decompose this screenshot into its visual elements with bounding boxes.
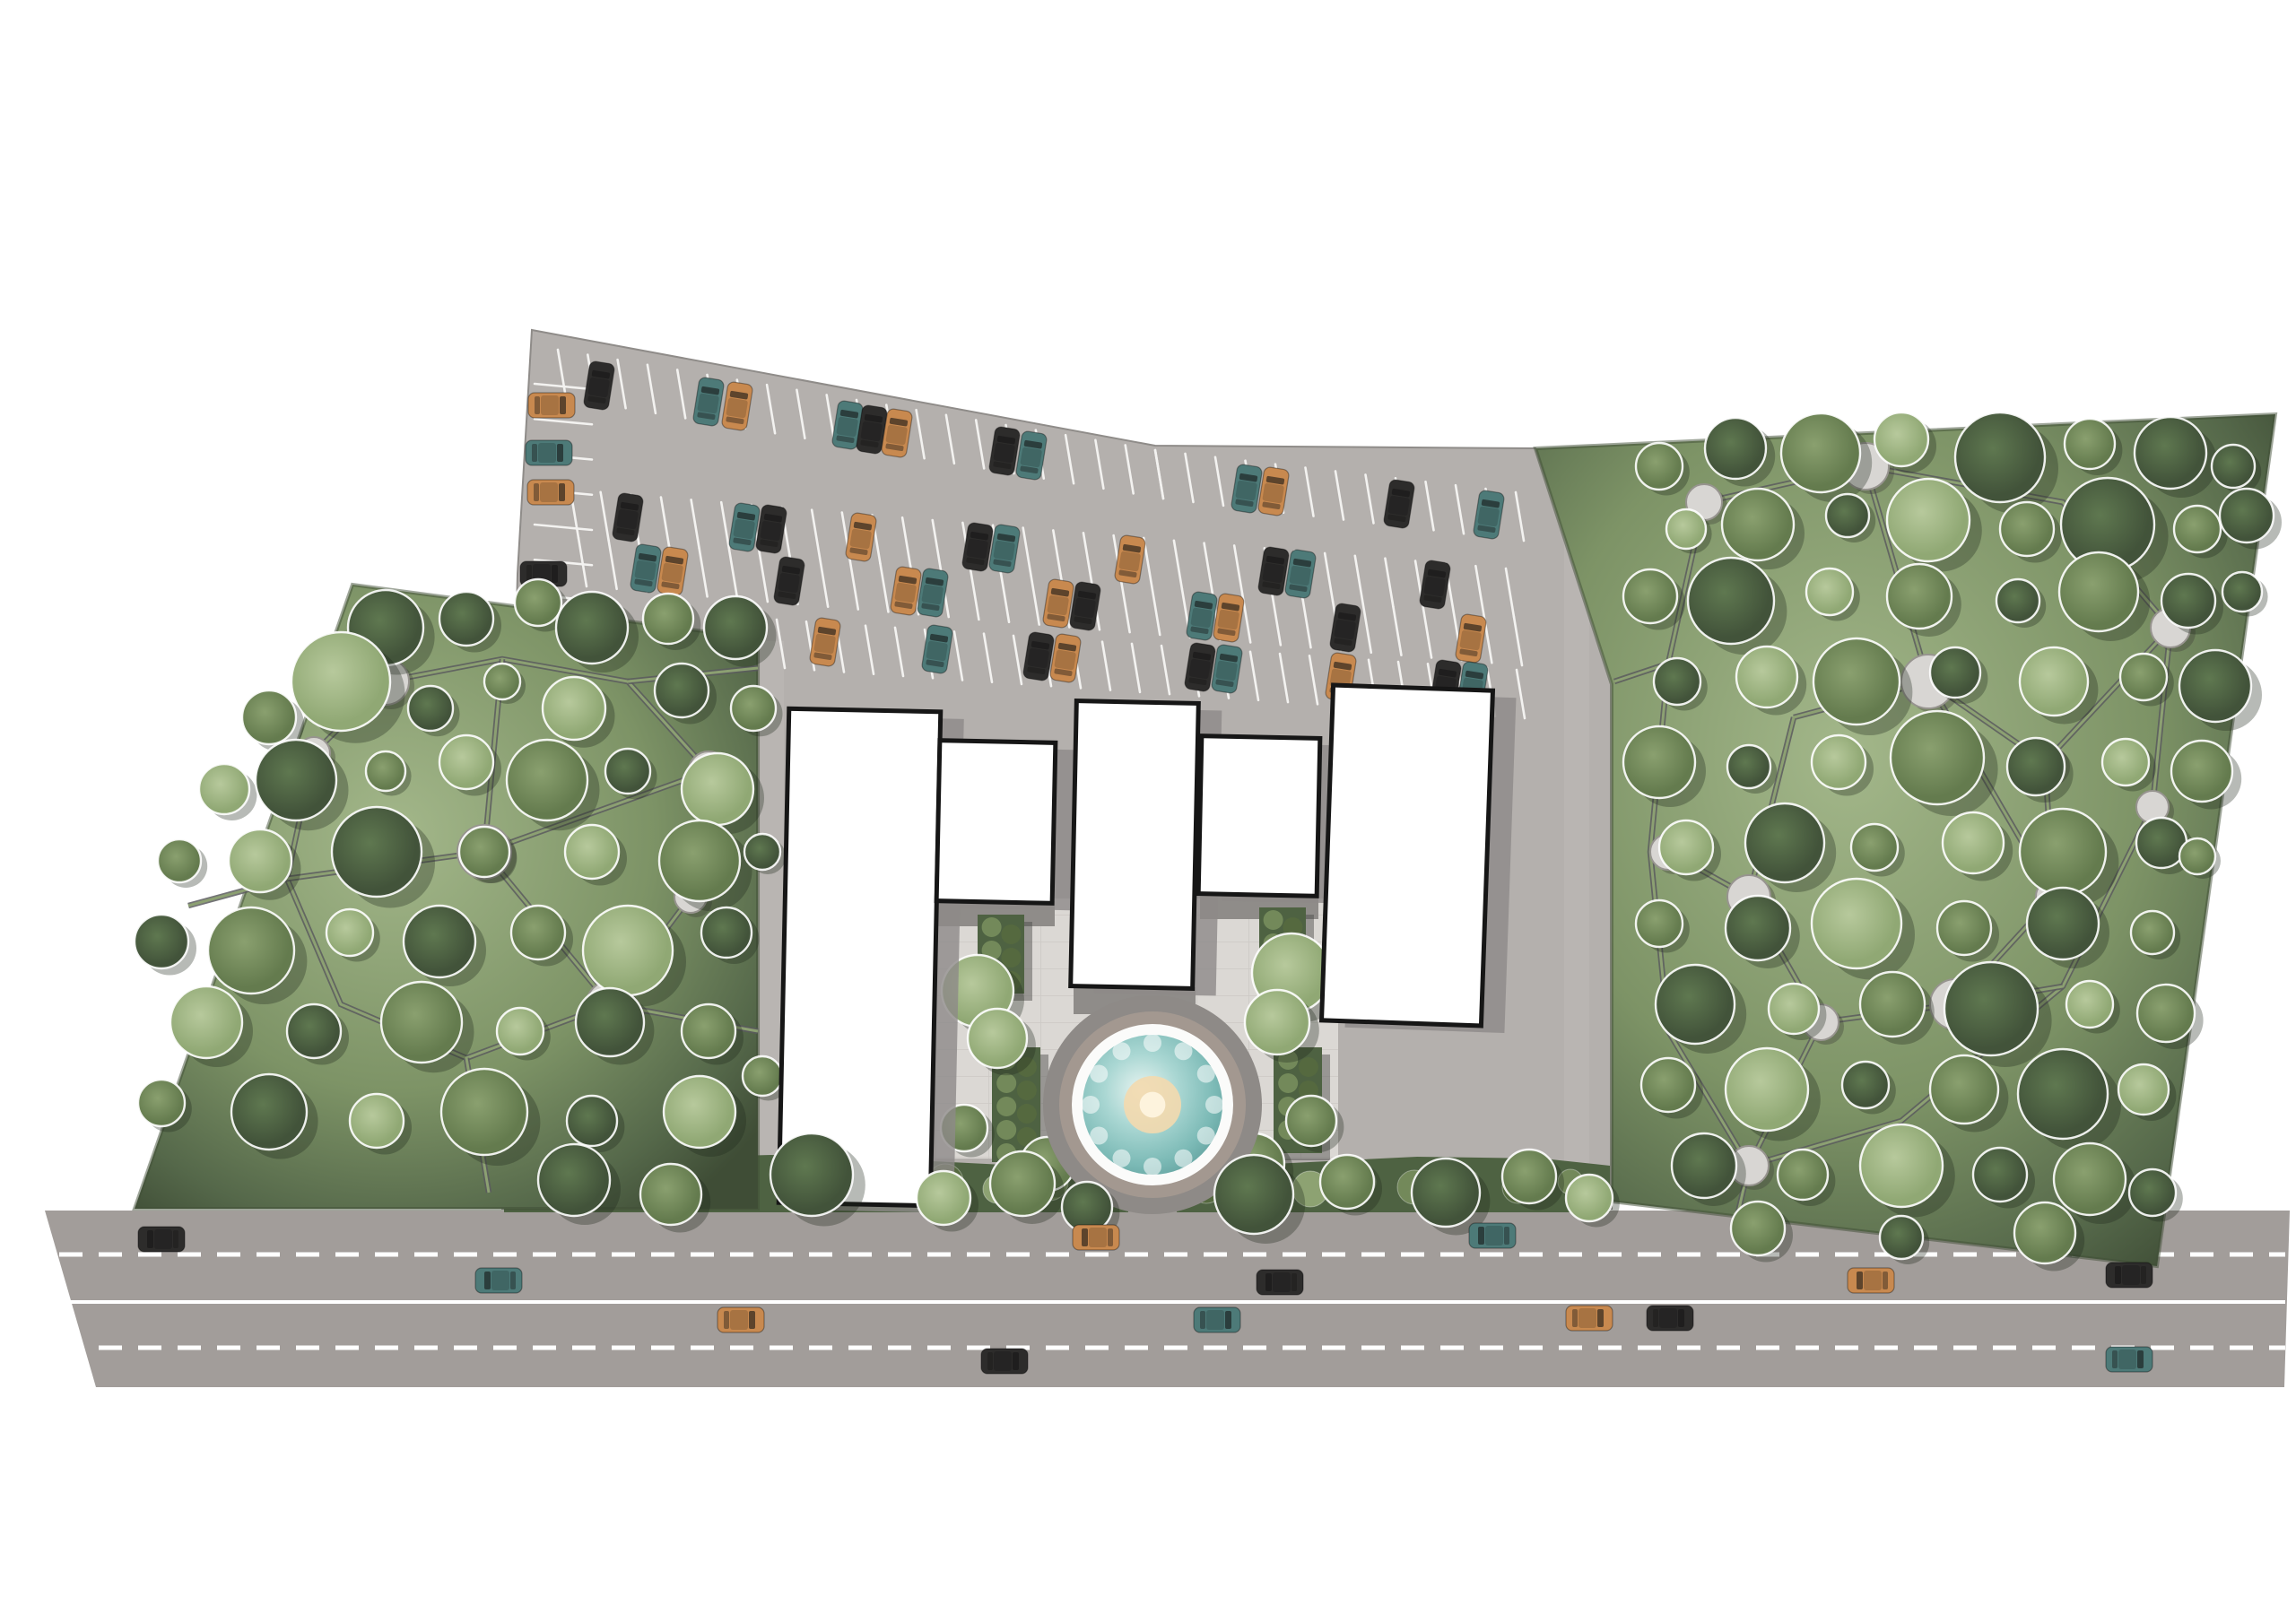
car-rear-window xyxy=(1883,1271,1888,1289)
tree xyxy=(990,1151,1055,1216)
tree xyxy=(208,907,294,994)
fountain-foam-fleck xyxy=(1113,1042,1131,1060)
tree xyxy=(439,735,493,789)
fountain-foam-fleck xyxy=(1144,1034,1161,1052)
tree xyxy=(1874,412,1928,466)
car-roof xyxy=(1047,595,1069,615)
tree xyxy=(1666,509,1706,549)
car-windshield xyxy=(484,1271,491,1289)
car-rear-window xyxy=(1200,1311,1205,1329)
building-footprint xyxy=(778,708,941,1205)
car xyxy=(2106,1263,2152,1288)
fountain-jet-core xyxy=(1140,1092,1166,1118)
car-rear-window xyxy=(2112,1350,2118,1368)
car-roof xyxy=(1485,1226,1503,1245)
tree xyxy=(1214,1155,1293,1234)
car-roof xyxy=(993,442,1015,463)
tree xyxy=(2220,489,2274,542)
car-roof xyxy=(634,560,657,580)
tree xyxy=(2065,419,2115,469)
car-roof xyxy=(587,377,610,397)
tree xyxy=(1320,1155,1374,1209)
tree xyxy=(1996,579,2039,622)
building-footprint xyxy=(936,741,1056,904)
planter-bush xyxy=(982,917,1002,937)
car-roof xyxy=(1477,506,1500,526)
building-footprint xyxy=(1322,685,1493,1026)
tree xyxy=(1887,564,1952,629)
car-roof xyxy=(921,584,944,604)
tree xyxy=(1745,803,1824,882)
tree xyxy=(576,988,644,1056)
car-roof xyxy=(2118,1350,2136,1369)
tree xyxy=(643,594,693,644)
car-roof xyxy=(1578,1308,1596,1328)
tree xyxy=(655,664,709,717)
car-roof xyxy=(1074,597,1096,618)
tree xyxy=(256,740,336,820)
car-roof xyxy=(541,395,559,415)
tree xyxy=(1860,972,1925,1037)
tree xyxy=(1891,711,1984,804)
planter-bush xyxy=(1001,924,1021,944)
tree xyxy=(1851,824,1898,871)
car-roof xyxy=(926,640,948,661)
tree xyxy=(1636,443,1683,490)
car-roof xyxy=(1262,482,1284,503)
car-windshield xyxy=(1478,1227,1484,1245)
tree xyxy=(2066,981,2113,1028)
tree xyxy=(1781,413,1860,492)
car-rear-window xyxy=(987,1352,993,1370)
tree xyxy=(242,690,296,744)
tree xyxy=(199,764,249,814)
car-roof xyxy=(1027,647,1049,668)
car-roof xyxy=(491,1271,509,1290)
car-roof xyxy=(1190,607,1213,628)
car xyxy=(1257,1270,1303,1295)
tree xyxy=(1826,494,1869,537)
car xyxy=(1848,1268,1894,1293)
tree xyxy=(1623,569,1677,623)
car-windshield xyxy=(1265,1273,1272,1291)
tree xyxy=(743,1056,782,1096)
tree xyxy=(2135,417,2206,489)
car-roof xyxy=(1459,629,1482,650)
car-roof xyxy=(1118,551,1141,571)
car xyxy=(1647,1306,1693,1331)
planter-bush xyxy=(1264,910,1283,930)
tree xyxy=(2179,650,2251,722)
car-roof xyxy=(1273,1272,1291,1292)
tree xyxy=(1726,896,1790,960)
car-roof xyxy=(540,482,558,502)
car-windshield xyxy=(2137,1350,2144,1368)
tree xyxy=(1636,900,1683,947)
tree xyxy=(408,686,453,731)
car-roof xyxy=(661,562,683,583)
car-rear-window xyxy=(1572,1309,1578,1327)
planter-bush xyxy=(996,1097,1016,1116)
fountain-foam-fleck xyxy=(1113,1150,1131,1167)
tree xyxy=(567,1096,617,1146)
car-roof xyxy=(1188,658,1211,679)
tree xyxy=(1778,1150,1828,1200)
left-park xyxy=(135,579,788,1209)
car-rear-window xyxy=(1108,1228,1113,1246)
tree xyxy=(1656,965,1735,1044)
car-roof xyxy=(836,416,858,437)
car xyxy=(526,440,572,465)
tree xyxy=(1930,1055,1998,1124)
tree xyxy=(1727,745,1770,788)
tree xyxy=(404,906,475,977)
tree xyxy=(1887,479,1970,561)
tree xyxy=(2059,552,2138,631)
car-windshield xyxy=(2115,1266,2121,1284)
car-windshield xyxy=(147,1230,153,1248)
car-rear-window xyxy=(510,1271,516,1289)
car-roof xyxy=(733,518,755,539)
car-windshield xyxy=(560,396,566,414)
planter-bush xyxy=(1299,1057,1318,1077)
tree xyxy=(664,1076,735,1148)
tree xyxy=(135,915,188,968)
car-roof xyxy=(1217,609,1239,629)
tree xyxy=(1944,962,2038,1055)
tree xyxy=(158,839,201,882)
car-windshield xyxy=(1678,1309,1684,1327)
car-rear-window xyxy=(1653,1309,1658,1327)
car-rear-window xyxy=(173,1230,178,1248)
tree xyxy=(2120,654,2167,700)
tree xyxy=(1654,658,1700,705)
tree xyxy=(1813,638,1900,725)
tree xyxy=(441,1069,527,1155)
right-park xyxy=(1535,412,2282,1271)
tree xyxy=(231,1074,307,1150)
planter-bush xyxy=(1278,1073,1298,1093)
car xyxy=(475,1268,522,1293)
tree xyxy=(2129,1169,2176,1216)
tree xyxy=(701,907,752,958)
car-roof xyxy=(1387,495,1410,516)
tree xyxy=(2007,738,2065,795)
fountain-foam-fleck xyxy=(1082,1096,1100,1114)
tree xyxy=(1412,1159,1480,1227)
tree xyxy=(2161,574,2215,628)
car-roof xyxy=(894,582,917,603)
car-roof xyxy=(726,397,748,418)
car-windshield xyxy=(1013,1352,1019,1370)
tree xyxy=(1502,1150,1556,1203)
fountain-foam-fleck xyxy=(1090,1065,1108,1083)
car-windshield xyxy=(557,444,563,462)
car-rear-window xyxy=(724,1311,729,1329)
tree xyxy=(1880,1216,1923,1259)
tree xyxy=(682,753,753,825)
tree xyxy=(1286,1096,1336,1146)
tree xyxy=(138,1080,185,1126)
car-windshield xyxy=(1597,1309,1604,1327)
tree xyxy=(326,909,373,956)
tree xyxy=(1736,647,1797,707)
car-roof xyxy=(1215,660,1238,681)
tree xyxy=(2102,739,2149,785)
car-roof xyxy=(697,393,719,413)
fountain-foam-fleck xyxy=(1175,1042,1193,1060)
planter-bush xyxy=(1001,948,1021,968)
tree xyxy=(2131,911,2174,954)
car-rear-window xyxy=(2141,1266,2146,1284)
tree xyxy=(1731,1202,1785,1255)
car-windshield xyxy=(1225,1311,1231,1329)
fountain-foam-fleck xyxy=(1175,1150,1193,1167)
planter-bush xyxy=(996,1073,1016,1093)
car xyxy=(1073,1225,1119,1250)
tree xyxy=(2137,985,2195,1042)
tree xyxy=(2212,445,2255,488)
tree xyxy=(659,820,740,901)
tree xyxy=(507,740,587,820)
tree xyxy=(1860,1124,1943,1207)
tree xyxy=(1705,418,1766,479)
tree xyxy=(287,1004,341,1058)
car-roof xyxy=(2122,1265,2140,1285)
car-roof xyxy=(760,520,782,541)
fountain-foam-fleck xyxy=(1205,1096,1223,1114)
car xyxy=(1194,1307,1240,1332)
tree xyxy=(565,825,619,879)
tree xyxy=(332,807,422,897)
tree xyxy=(1726,1048,1808,1131)
tree xyxy=(1943,812,2004,873)
car-roof xyxy=(1659,1308,1677,1328)
car xyxy=(717,1307,764,1332)
tree xyxy=(1812,735,1865,789)
car-windshield xyxy=(1857,1271,1863,1289)
tree xyxy=(744,834,780,870)
tree xyxy=(538,1144,610,1216)
building-footprint xyxy=(1198,736,1320,897)
tree xyxy=(2174,506,2221,552)
tree xyxy=(682,1004,735,1058)
tree xyxy=(497,1008,544,1055)
car-roof xyxy=(860,421,883,441)
car-rear-window xyxy=(1504,1227,1509,1245)
tree xyxy=(704,596,767,659)
tree xyxy=(1566,1175,1613,1221)
building-footprint xyxy=(1071,701,1199,989)
tree xyxy=(968,1009,1027,1068)
tree xyxy=(1930,647,1980,698)
car-roof xyxy=(966,538,988,559)
tree xyxy=(350,1094,404,1148)
car-roof xyxy=(1235,480,1257,500)
fountain-foam-fleck xyxy=(1090,1127,1108,1145)
planter-bush xyxy=(1017,1081,1037,1100)
fountain-foam-fleck xyxy=(1197,1065,1215,1083)
tree xyxy=(2018,1049,2108,1139)
car-roof xyxy=(885,424,908,445)
tree xyxy=(170,986,242,1058)
car-roof xyxy=(1089,1228,1107,1247)
tree xyxy=(770,1133,853,1216)
fountain-foam-fleck xyxy=(1197,1127,1215,1145)
car-rear-window xyxy=(535,396,540,414)
tree xyxy=(2179,838,2215,874)
site-plan-drawing xyxy=(0,0,2296,1623)
tree xyxy=(583,906,673,995)
tree xyxy=(1842,1062,1889,1108)
car-rear-window xyxy=(1291,1273,1297,1291)
car-roof xyxy=(1334,619,1356,639)
tree xyxy=(511,906,565,959)
car-roof xyxy=(1054,649,1076,670)
tree xyxy=(2027,888,2099,959)
tree xyxy=(484,664,520,699)
car xyxy=(1469,1223,1516,1248)
car xyxy=(2106,1347,2152,1372)
tree xyxy=(2222,572,2262,612)
tree xyxy=(1955,412,2045,502)
tree xyxy=(1659,820,1713,874)
tree xyxy=(366,751,405,791)
tree xyxy=(1937,901,1991,955)
tree xyxy=(2000,502,2054,556)
planter-bush xyxy=(1017,1104,1037,1124)
car-roof xyxy=(616,508,639,529)
car-roof xyxy=(778,572,800,593)
car xyxy=(981,1349,1028,1374)
tree xyxy=(2020,647,2088,716)
tree xyxy=(515,579,561,626)
tree xyxy=(731,686,776,731)
car-roof xyxy=(993,540,1015,560)
tree xyxy=(1623,726,1695,798)
car xyxy=(138,1227,185,1252)
tree xyxy=(2020,809,2106,895)
car-roof xyxy=(813,633,836,654)
car-windshield xyxy=(552,565,558,583)
tree xyxy=(439,592,493,646)
car-rear-window xyxy=(534,483,539,501)
car-roof xyxy=(994,1351,1012,1371)
car xyxy=(1566,1306,1613,1331)
car xyxy=(527,480,574,505)
car-roof xyxy=(1289,565,1311,586)
car-roof xyxy=(849,528,872,549)
site-plan-canvas xyxy=(0,0,2296,1623)
car-windshield xyxy=(749,1311,755,1329)
car-windshield xyxy=(1082,1228,1088,1246)
planter-bush xyxy=(996,1120,1016,1140)
car-roof xyxy=(1020,447,1042,467)
tree xyxy=(917,1171,970,1225)
tree xyxy=(381,982,462,1063)
car-rear-window xyxy=(532,444,537,462)
tree xyxy=(459,827,509,877)
tree xyxy=(2014,1202,2075,1263)
car-roof xyxy=(1423,576,1446,596)
tree xyxy=(291,632,390,731)
tree xyxy=(2171,741,2232,802)
tree xyxy=(1245,990,1309,1055)
tree xyxy=(543,677,605,740)
tree xyxy=(2054,1143,2126,1215)
tree xyxy=(1806,568,1853,615)
tree xyxy=(1769,984,1819,1034)
tree xyxy=(229,829,291,892)
tree xyxy=(1688,558,1774,644)
car-windshield xyxy=(559,483,565,501)
tree xyxy=(605,749,650,794)
tree xyxy=(1722,489,1794,560)
tree xyxy=(1973,1148,2027,1202)
car-roof xyxy=(1864,1271,1882,1290)
tree xyxy=(1641,1058,1695,1112)
tree xyxy=(1672,1133,1736,1198)
tree xyxy=(2118,1064,2169,1115)
car-roof xyxy=(1262,562,1284,583)
tree xyxy=(1812,879,1901,968)
car xyxy=(528,393,575,418)
car-roof xyxy=(154,1229,172,1249)
fountain-foam-fleck xyxy=(1144,1158,1161,1176)
car-roof xyxy=(730,1310,748,1330)
tree xyxy=(556,592,628,664)
tree xyxy=(640,1164,701,1225)
car-roof xyxy=(1206,1310,1224,1330)
car-roof xyxy=(538,443,556,463)
